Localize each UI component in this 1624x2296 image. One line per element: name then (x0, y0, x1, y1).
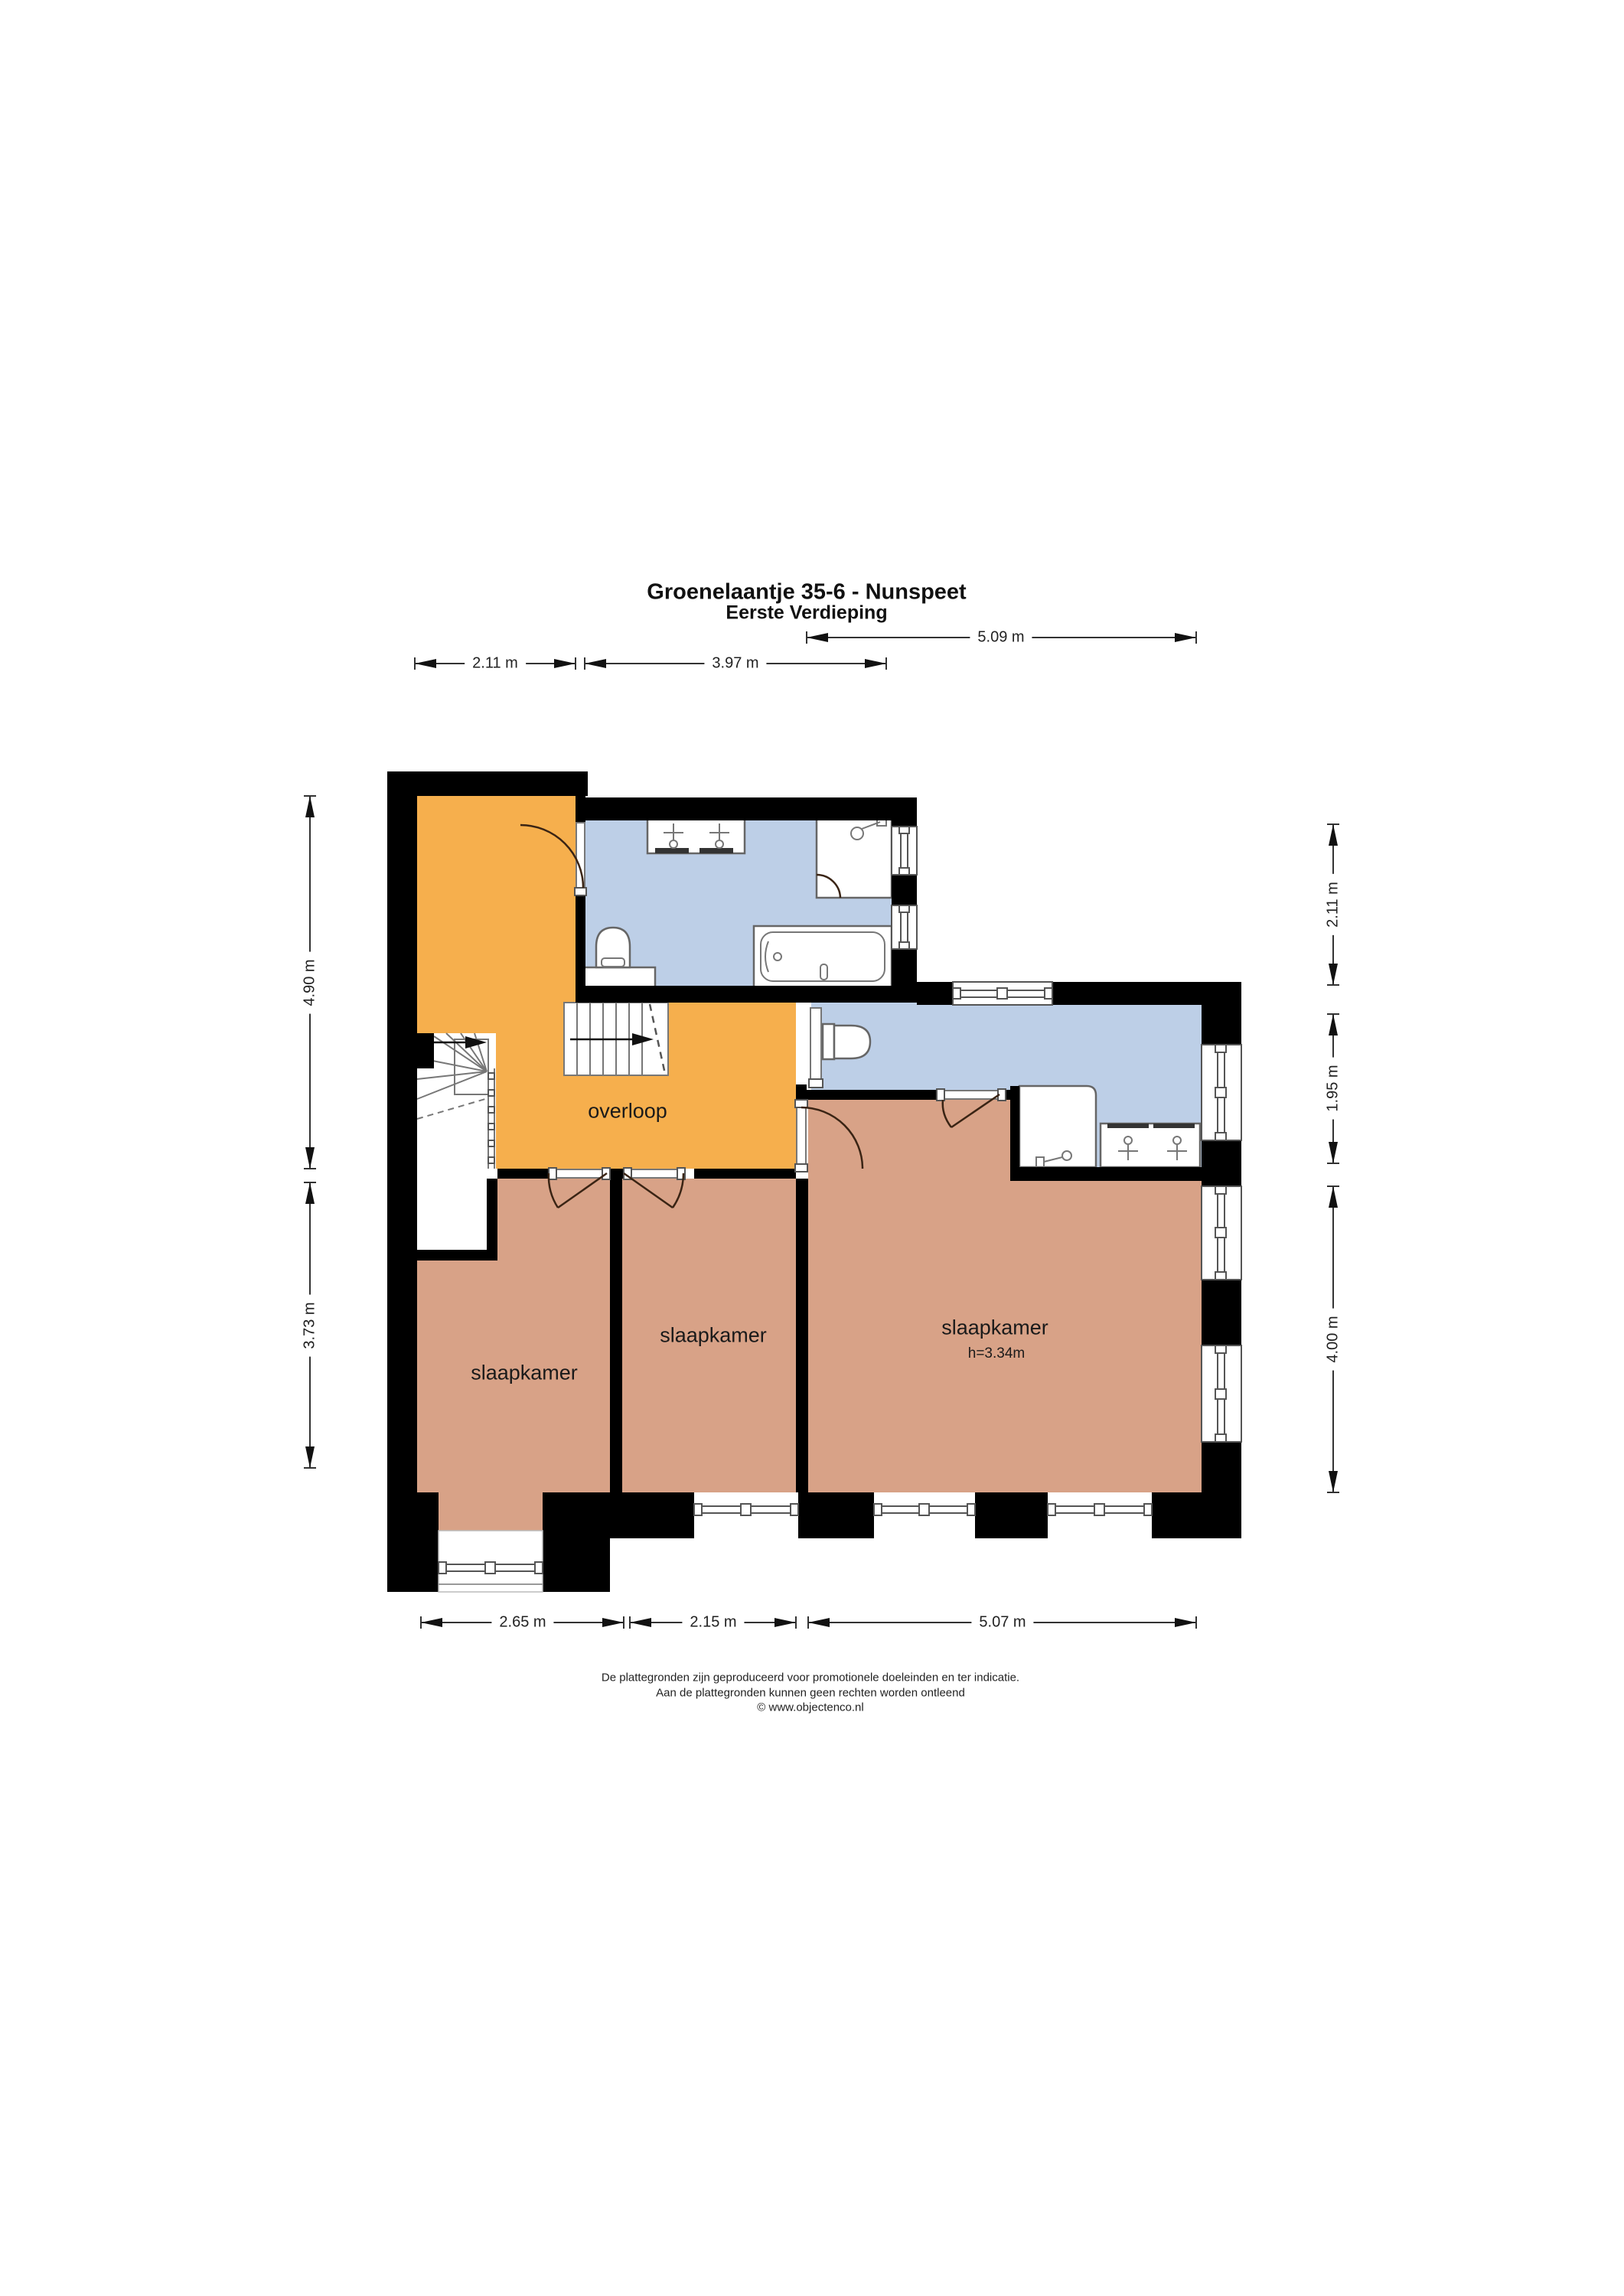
double-sink-vanity (1101, 1124, 1200, 1167)
footer-disclaimer-line2: Aan de plattegronden kunnen geen rechten… (656, 1687, 965, 1700)
toilet-icon (823, 1024, 870, 1059)
bathtub-icon (754, 926, 892, 987)
shower-cabin (1019, 1086, 1096, 1168)
dim-right-upper: 2.11 m (1325, 874, 1342, 935)
window (892, 905, 917, 949)
bedroom-left-floor (417, 1179, 610, 1531)
window (1202, 1345, 1241, 1442)
dim-right-lower: 4.00 m (1325, 1308, 1342, 1370)
double-sink-vanity (647, 819, 745, 853)
dim-left-lower: 3.73 m (302, 1294, 319, 1356)
room-label-bedroom-left: slaapkamer (471, 1362, 578, 1385)
window (953, 982, 1052, 1005)
bay-window (439, 1531, 543, 1592)
window (1202, 1045, 1241, 1140)
dim-bottom-right: 5.07 m (971, 1614, 1033, 1632)
window (892, 827, 917, 875)
footer-disclaimer-line1: De plattegronden zijn geproduceerd voor … (602, 1671, 1019, 1684)
dim-top-middle: 3.97 m (704, 655, 766, 673)
plan-subtitle: Eerste Verdieping (726, 602, 887, 625)
window (1202, 1186, 1241, 1280)
floor-plan-drawing (0, 0, 1624, 2296)
room-label-bedroom-middle: slaapkamer (660, 1324, 767, 1348)
footer-copyright: © www.objectenco.nl (757, 1701, 863, 1714)
railing-balusters (488, 1073, 494, 1163)
dim-top-left: 2.11 m (465, 655, 526, 673)
window (694, 1492, 798, 1538)
room-label-bedroom-right: slaapkamer (941, 1316, 1048, 1340)
dim-right-middle: 1.95 m (1325, 1057, 1342, 1119)
floorplan-page: Groenelaantje 35-6 - Nunspeet Eerste Ver… (0, 0, 1624, 2296)
dim-left-upper: 4.90 m (302, 951, 319, 1013)
dim-bottom-left: 2.65 m (491, 1614, 553, 1632)
door (809, 1008, 823, 1088)
straight-stair (564, 1003, 668, 1075)
dim-top-right: 5.09 m (970, 629, 1032, 647)
room-label-ceiling-height: h=3.34m (968, 1345, 1025, 1362)
dim-bottom-middle: 2.15 m (682, 1614, 744, 1632)
room-label-overloop: overloop (588, 1100, 667, 1124)
window (874, 1492, 975, 1538)
window (1048, 1492, 1152, 1538)
shower-cabin (817, 819, 892, 898)
